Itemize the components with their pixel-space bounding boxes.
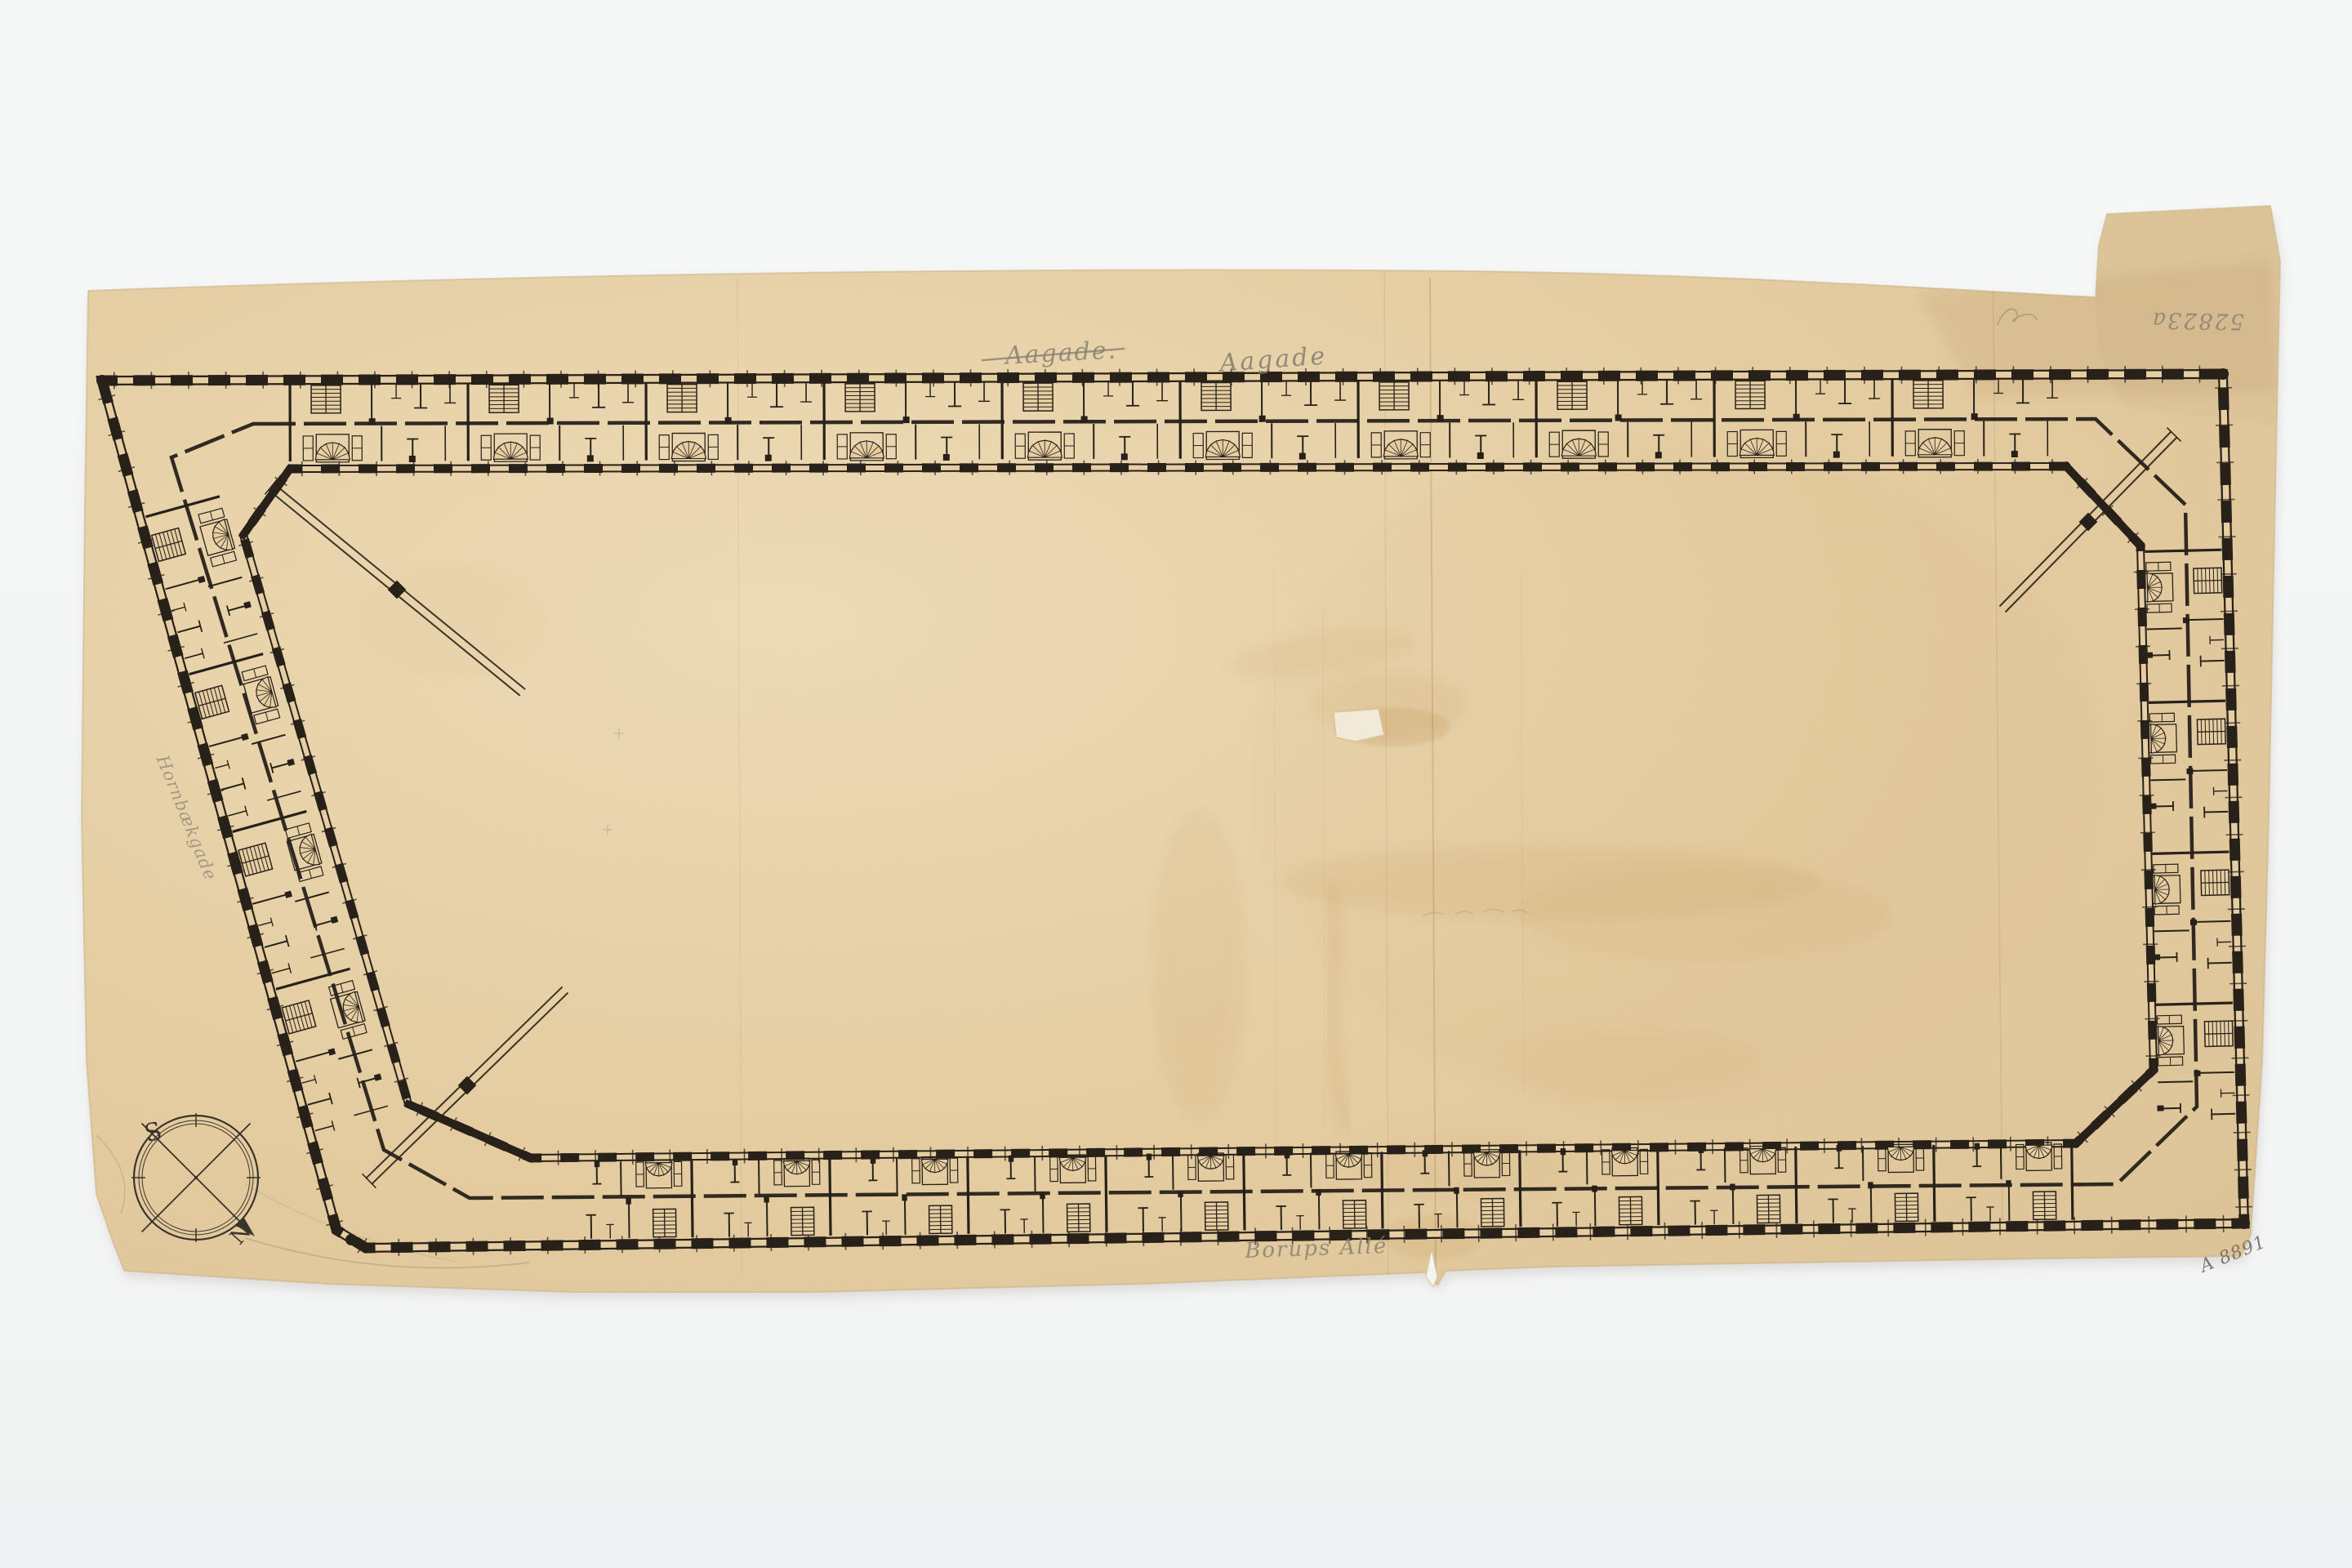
paper-texture — [78, 200, 2291, 1298]
paper-repair-patch — [1334, 709, 1384, 742]
scanned-floor-plan-page: Aagade. Aagade Borups Allé Hornbækgade 5… — [0, 0, 2352, 1568]
street-label-bottom: Borups Allé — [1244, 1234, 1388, 1263]
paper-sheet — [78, 200, 2291, 1298]
inventory-number-top-right: 52823a — [2151, 307, 2245, 334]
floor-plan-scan: Aagade. Aagade Borups Allé Hornbækgade 5… — [0, 0, 2352, 1568]
